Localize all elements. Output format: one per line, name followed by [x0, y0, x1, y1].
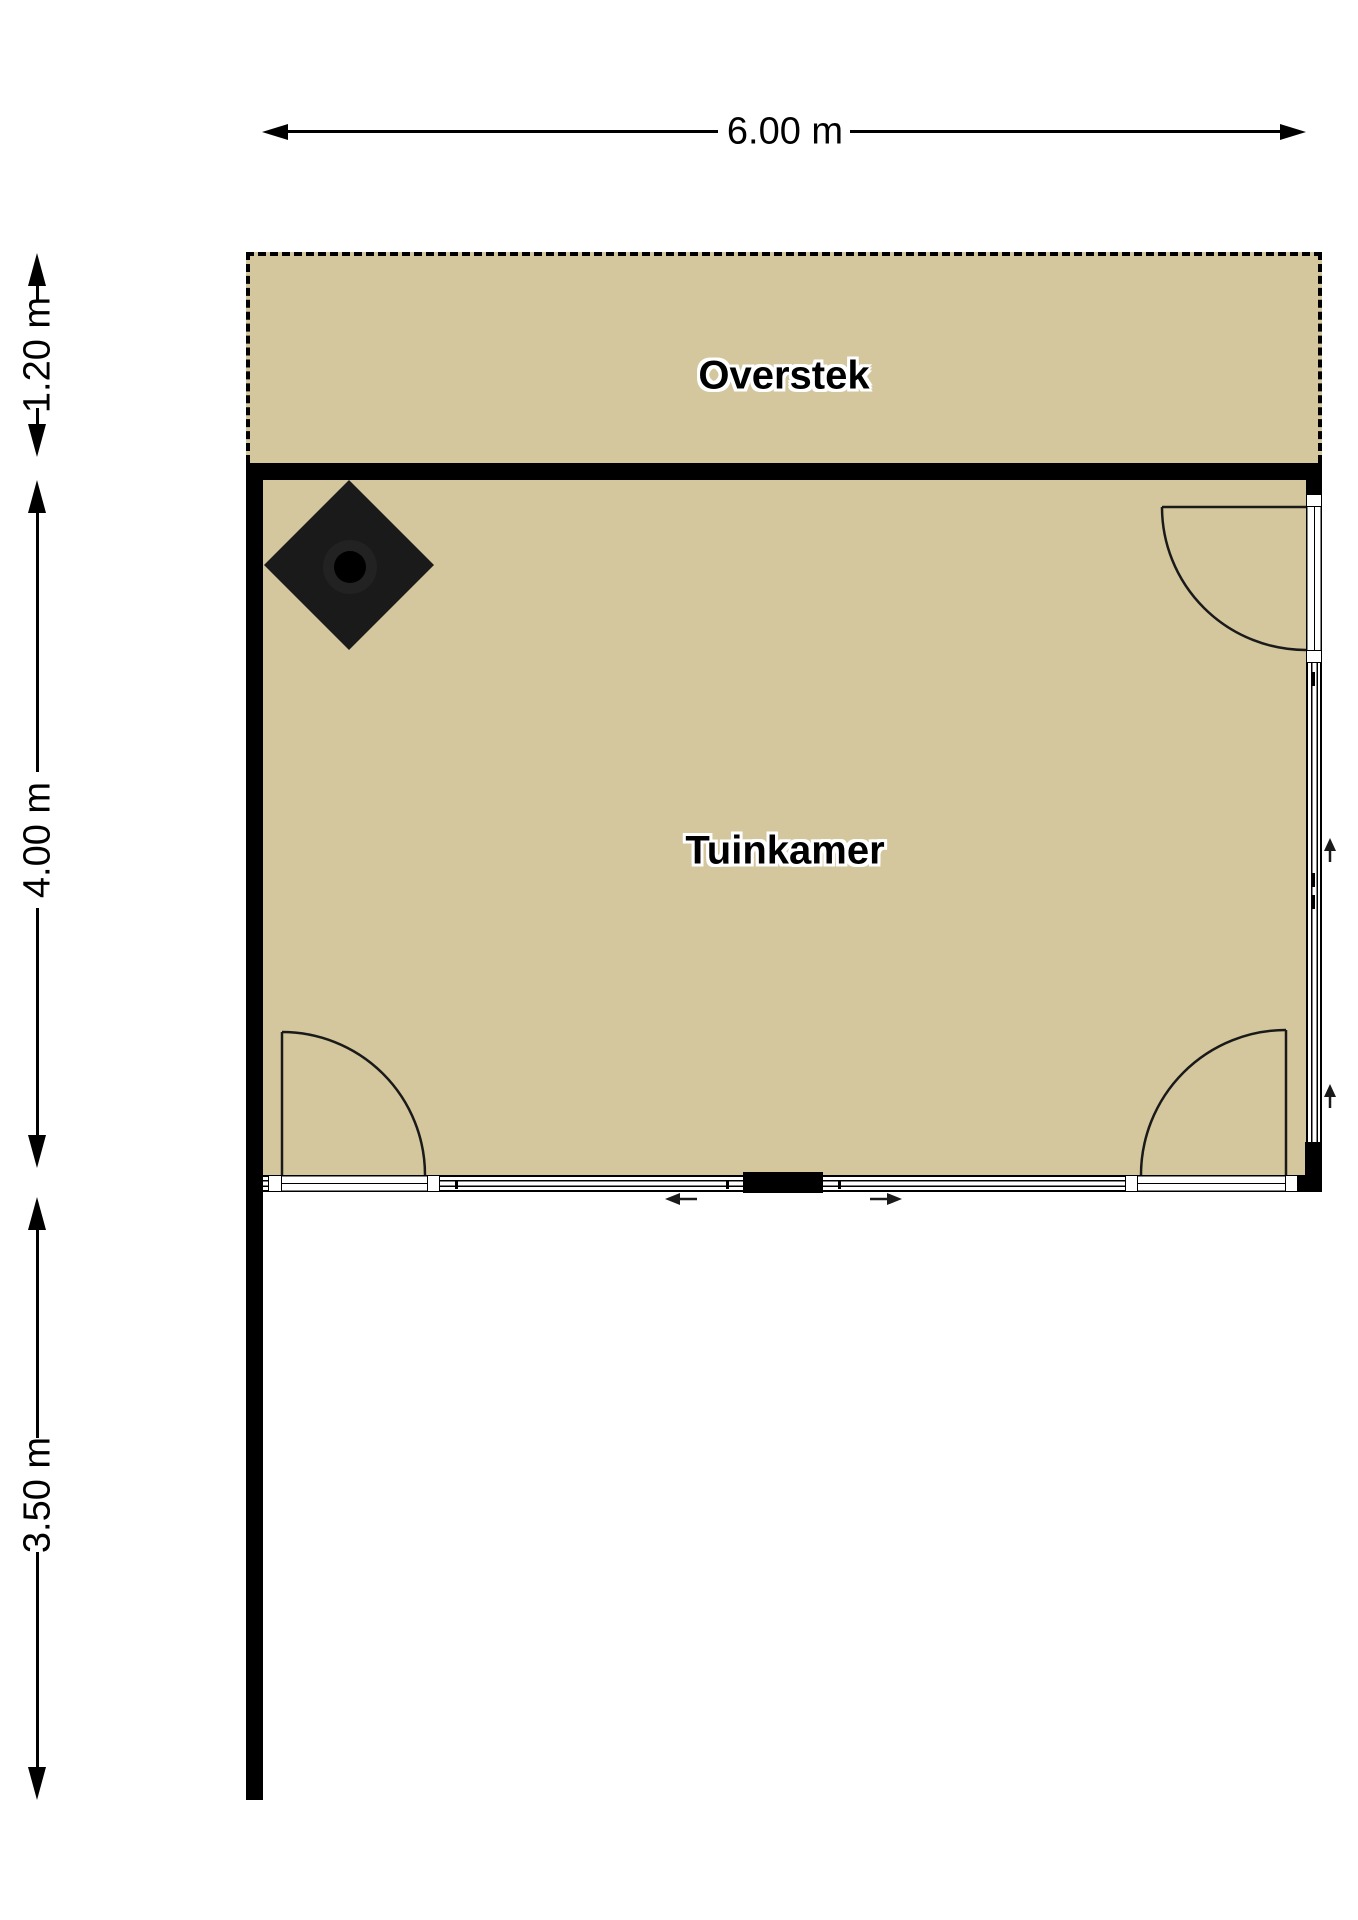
floorplan-canvas: 6.00 m 1.20 m 4.00 m 3.50 m Overstek [0, 0, 1358, 1920]
symbols-overlay [0, 0, 1358, 1920]
window-arrow-up-icon [1324, 838, 1336, 862]
wood-stove-diamond-icon [264, 480, 434, 650]
top-right-hinged-door-icon [1162, 507, 1306, 650]
bottom-left-hinged-door-icon [282, 1032, 425, 1175]
sliding-door-arrow-left-icon [665, 1193, 697, 1205]
window-arrow-up-icon [1324, 1084, 1336, 1108]
bottom-right-hinged-door-icon [1141, 1030, 1286, 1175]
sliding-door-arrow-right-icon [870, 1193, 902, 1205]
